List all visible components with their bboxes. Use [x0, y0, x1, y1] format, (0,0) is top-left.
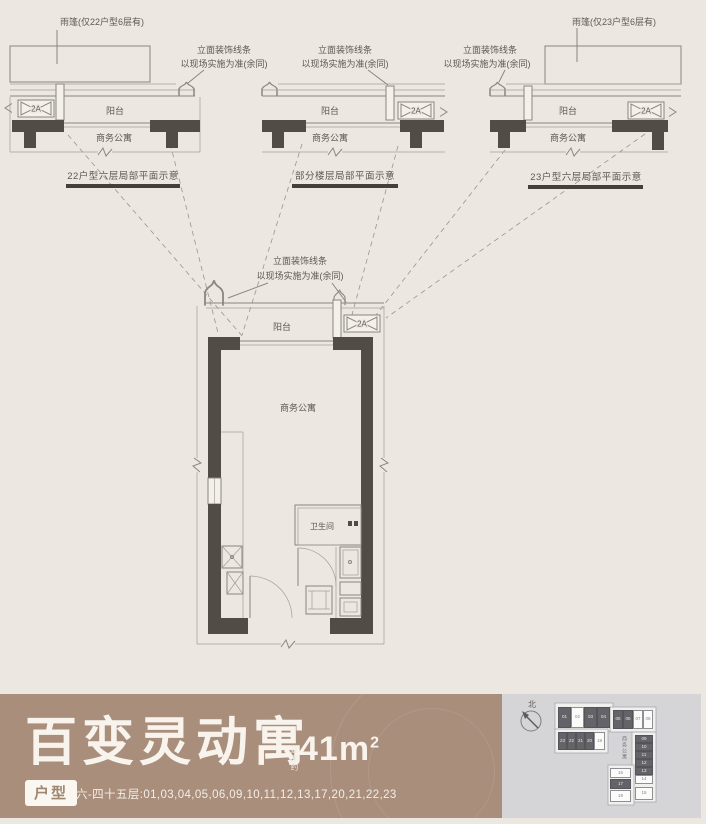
facade-note-line2: 以现场实施为准(余同) — [181, 58, 268, 69]
keyplan-unit-cell: 21 — [576, 732, 585, 750]
molding-icon — [490, 82, 505, 96]
keyplan-cells: 0102030405060708232221201909101112131415… — [502, 694, 701, 818]
bath-door-swing — [298, 548, 336, 586]
caption-underline — [292, 184, 398, 188]
keyplan-unit-cell: 17 — [610, 779, 631, 789]
keyplan-core-label: 商务公寓 — [621, 736, 628, 760]
facade-note-line2: 以现场实施为准(余同) — [302, 58, 389, 69]
caption-underline — [528, 185, 643, 189]
arrow-icon — [440, 108, 447, 117]
keyplan-unit-cell: 23 — [558, 732, 567, 750]
facade-note-line1: 立面装饰线条 — [463, 44, 517, 55]
projection-lines — [68, 134, 645, 337]
facade-note-line2: 以现场实施为准(余同) — [444, 58, 531, 69]
section-left: 雨篷(仅22户型6层有) 立面装饰线条 以现场实施为准(余同) 2A 阳台 商务… — [5, 16, 268, 188]
room-label: 商务公寓 — [280, 402, 316, 413]
canopy-label: 雨篷(仅23户型6层有) — [572, 16, 656, 27]
bathroom-label: 卫生间 — [310, 521, 334, 531]
keyplan-unit-cell: 20 — [585, 732, 594, 750]
area-number: 41m — [299, 730, 370, 768]
toilet — [306, 586, 332, 614]
keyplan-unit-cell: 06 — [623, 710, 633, 729]
room-label: 商务公寓 — [550, 132, 586, 143]
keyplan-unit-cell: 05 — [613, 710, 623, 729]
bath-cabinet — [340, 582, 361, 595]
keyplan-unit-cell: 22 — [567, 732, 576, 750]
area-prefix-label: 建面约 — [287, 746, 298, 772]
molding-icon — [262, 82, 277, 96]
keyplan-unit-cell: 19 — [594, 732, 605, 750]
keyplan-unit-cell: 15 — [635, 787, 653, 800]
page: 雨篷(仅22户型6层有) 立面装饰线条 以现场实施为准(余同) 2A 阳台 商务… — [0, 0, 706, 824]
keyplan-unit-cell: 08 — [643, 710, 653, 729]
area-value: 41m2 — [299, 730, 380, 769]
keyplan: 北 01020304050607082322212019091011121314… — [502, 694, 701, 818]
keyplan-unit-cell: 14 — [635, 775, 653, 784]
keyplan-unit-cell: 16 — [610, 768, 631, 778]
ac-label: 2A — [411, 107, 421, 116]
bath-cabinet — [340, 598, 361, 616]
keyplan-unit-cell: 09 — [635, 735, 653, 743]
keyplan-unit-cell: 04 — [597, 707, 610, 728]
canopy-label: 雨篷(仅22户型6层有) — [60, 16, 144, 27]
keyplan-unit-cell: 10 — [635, 743, 653, 751]
keyplan-unit-cell: 07 — [633, 710, 643, 729]
balcony-label: 阳台 — [321, 105, 339, 116]
facade-note-line1: 立面装饰线条 — [197, 44, 251, 55]
canopy-outline — [10, 46, 150, 82]
banner: 百变灵动寓 建面约 41m2 户型 六-四十五层:01,03,04,05,06,… — [0, 694, 502, 818]
facade-note-line1: 立面装饰线条 — [273, 255, 327, 266]
caption-underline — [66, 184, 180, 188]
banner-title: 百变灵动寓 — [25, 700, 310, 775]
facade-note-line1: 立面装饰线条 — [318, 44, 372, 55]
keyplan-unit-cell: 13 — [635, 767, 653, 775]
unit-type-tag: 户型 — [25, 780, 77, 806]
architectural-drawing: 雨篷(仅22户型6层有) 立面装饰线条 以现场实施为准(余同) 2A 阳台 商务… — [0, 0, 706, 694]
balcony-label: 阳台 — [106, 105, 124, 116]
room-label: 商务公寓 — [96, 132, 132, 143]
keyplan-unit-cell: 02 — [571, 707, 584, 728]
canopy-outline — [545, 46, 681, 84]
floors-text: 六-四十五层:01,03,04,05,06,09,10,11,12,13,17,… — [76, 786, 397, 802]
section-caption: 部分楼层局部平面示意 — [295, 170, 395, 182]
section-middle: 立面装饰线条 以现场实施为准(余同) 2A 阳台 商务公寓 部分楼层局部平面示意 — [262, 44, 447, 188]
keyplan-unit-cell: 11 — [635, 751, 653, 759]
keyplan-unit-cell: 18 — [610, 790, 631, 802]
ac-label: 2A — [357, 320, 367, 329]
ac-label: 2A — [641, 107, 651, 116]
section-caption: 22户型六层局部平面示意 — [67, 170, 179, 182]
balcony-label: 阳台 — [273, 321, 291, 332]
balcony-label: 阳台 — [559, 105, 577, 116]
arrow-icon — [669, 108, 676, 117]
area-superscript: 2 — [370, 735, 380, 752]
ac-label: 2A — [31, 105, 41, 114]
room-label: 商务公寓 — [312, 132, 348, 143]
section-caption: 23户型六层局部平面示意 — [530, 171, 642, 183]
entry-door-swing — [250, 576, 292, 618]
keyplan-unit-cell: 01 — [558, 707, 571, 728]
section-right: 雨篷(仅23户型6层有) 立面装饰线条 以现场实施为准(余同) 2A 阳台 商务… — [444, 16, 682, 189]
arrow-icon — [5, 104, 12, 113]
molding-icon — [179, 82, 194, 96]
main-floor-plan: 立面装饰线条 以现场实施为准(余同) 2A 阳台 — [193, 255, 388, 648]
keyplan-unit-cell: 12 — [635, 759, 653, 767]
keyplan-unit-cell: 03 — [584, 707, 597, 728]
facade-note-line2: 以现场实施为准(余同) — [257, 270, 344, 281]
